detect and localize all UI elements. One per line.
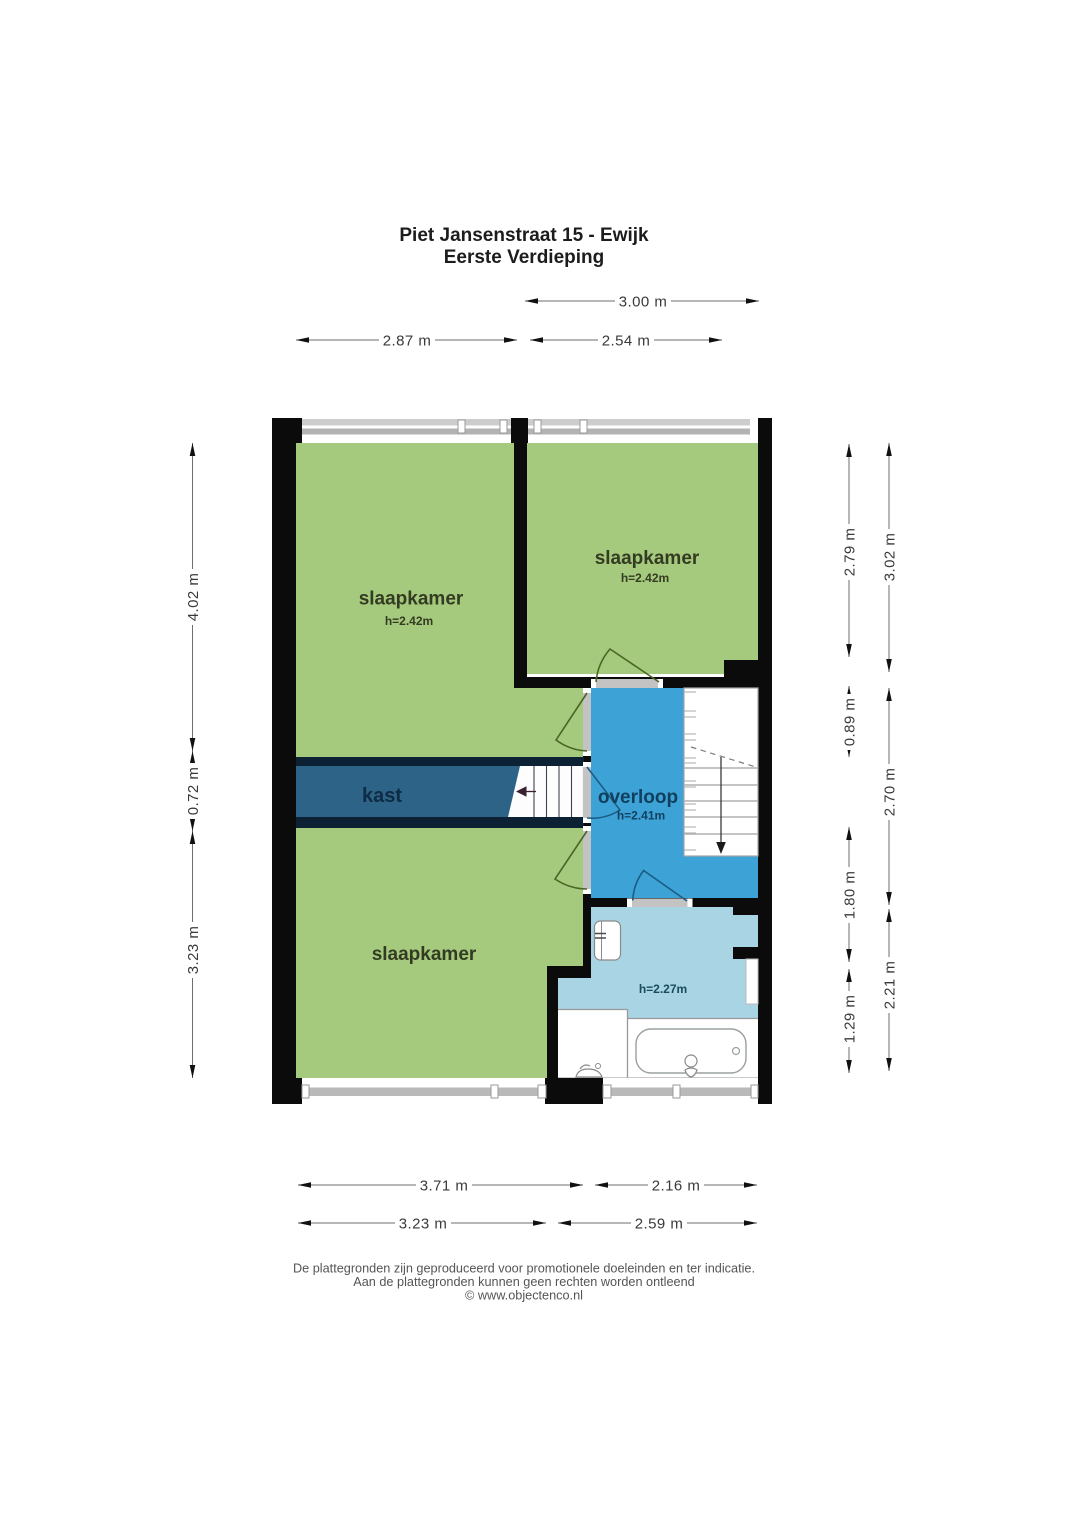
svg-text:h=2.42m: h=2.42m bbox=[621, 571, 669, 585]
svg-text:© www.objectenco.nl: © www.objectenco.nl bbox=[465, 1289, 583, 1303]
svg-text:4.02 m: 4.02 m bbox=[185, 573, 202, 622]
svg-text:overloop: overloop bbox=[598, 787, 678, 808]
svg-text:1.80 m: 1.80 m bbox=[841, 871, 858, 920]
svg-text:2.79 m: 2.79 m bbox=[841, 528, 858, 577]
svg-text:kast: kast bbox=[362, 785, 402, 807]
svg-text:3.71 m: 3.71 m bbox=[420, 1177, 469, 1194]
svg-text:Aan de plattegronden kunnen ge: Aan de plattegronden kunnen geen rechten… bbox=[353, 1275, 694, 1289]
svg-text:slaapkamer: slaapkamer bbox=[595, 548, 700, 569]
svg-text:Eerste Verdieping: Eerste Verdieping bbox=[444, 247, 605, 268]
svg-text:0.89 m: 0.89 m bbox=[841, 698, 858, 747]
svg-text:3.02 m: 3.02 m bbox=[881, 533, 898, 582]
svg-text:2.21 m: 2.21 m bbox=[881, 961, 898, 1010]
svg-text:h=2.42m: h=2.42m bbox=[385, 614, 433, 628]
svg-text:3.23 m: 3.23 m bbox=[185, 926, 202, 975]
svg-text:h=2.27m: h=2.27m bbox=[639, 982, 687, 996]
svg-text:Piet Jansenstraat 15 - Ewijk: Piet Jansenstraat 15 - Ewijk bbox=[399, 225, 649, 246]
svg-text:2.87 m: 2.87 m bbox=[383, 332, 432, 349]
svg-text:3.23 m: 3.23 m bbox=[399, 1215, 448, 1232]
svg-text:1.29 m: 1.29 m bbox=[841, 995, 858, 1044]
svg-text:2.54 m: 2.54 m bbox=[602, 332, 651, 349]
svg-text:slaapkamer: slaapkamer bbox=[372, 944, 477, 965]
svg-text:slaapkamer: slaapkamer bbox=[359, 589, 464, 610]
svg-text:2.59 m: 2.59 m bbox=[635, 1215, 684, 1232]
svg-text:2.16 m: 2.16 m bbox=[652, 1177, 701, 1194]
svg-text:2.70 m: 2.70 m bbox=[881, 768, 898, 817]
svg-text:0.72 m: 0.72 m bbox=[185, 767, 202, 816]
svg-text:3.00 m: 3.00 m bbox=[619, 293, 668, 310]
svg-text:De plattegronden zijn geproduc: De plattegronden zijn geproduceerd voor … bbox=[293, 1262, 755, 1276]
svg-text:h=2.41m: h=2.41m bbox=[617, 809, 665, 823]
